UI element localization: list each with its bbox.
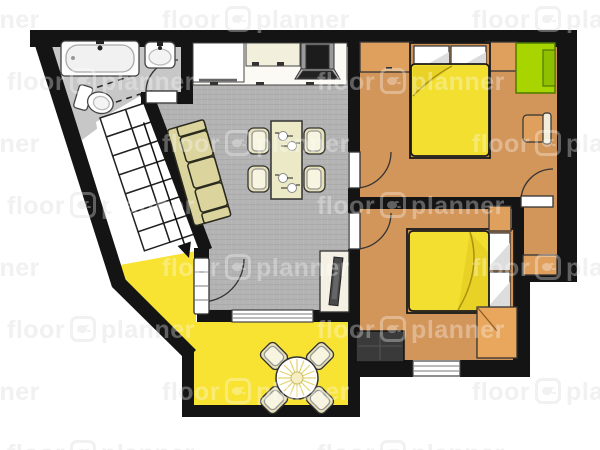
alcove-cabinet[interactable] [523, 255, 557, 275]
fridge [193, 43, 244, 82]
stove[interactable] [295, 43, 340, 79]
green-desk[interactable] [516, 43, 555, 93]
dark-dresser[interactable] [356, 331, 404, 362]
tv-sideboard[interactable] [320, 251, 349, 312]
dining-chair [248, 128, 269, 154]
dining-table[interactable] [271, 121, 302, 199]
dining-chair [248, 166, 269, 192]
corner-cabinet-bedroom2[interactable] [477, 307, 517, 358]
double-bed-1[interactable] [410, 43, 490, 158]
round-table[interactable] [276, 357, 318, 399]
dining-chair [304, 166, 325, 192]
floorplanner-export-canvas: floorplannerfloorplannerfloorplannerfloo… [0, 0, 600, 450]
dining-chair [304, 128, 325, 154]
side-chair-bedroom1[interactable] [523, 113, 551, 144]
drain [71, 56, 75, 60]
window-bedroom2-south[interactable] [413, 361, 460, 376]
floorplan-drawing [0, 0, 600, 450]
wardrobe-bedroom1-left[interactable] [360, 42, 413, 72]
bathroom-sink[interactable] [145, 41, 175, 68]
window-living-south[interactable] [232, 310, 313, 322]
bathtub[interactable] [61, 40, 139, 76]
double-bed-2[interactable] [407, 229, 514, 313]
nightstand-bedroom2[interactable] [489, 206, 511, 231]
